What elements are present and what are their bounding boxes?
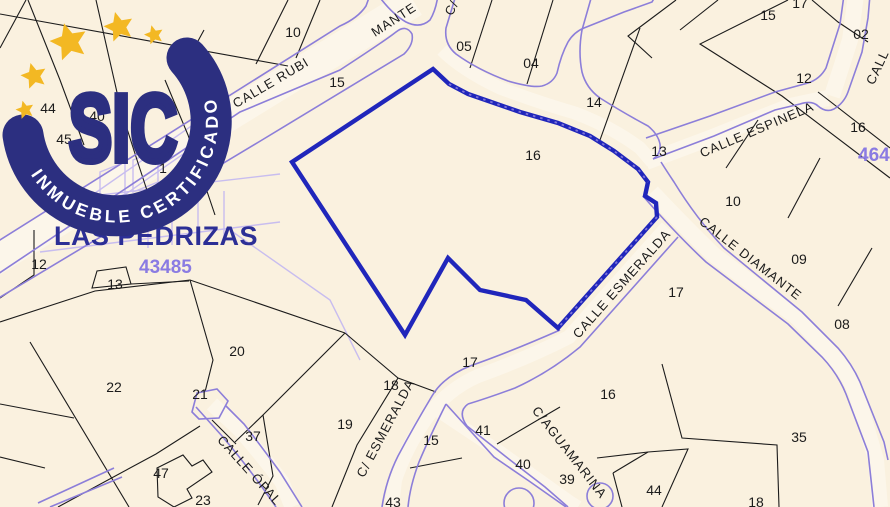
svg-text:17: 17 bbox=[792, 0, 808, 11]
svg-text:05: 05 bbox=[456, 38, 472, 54]
svg-text:16: 16 bbox=[850, 119, 866, 135]
svg-text:17: 17 bbox=[462, 354, 478, 370]
svg-text:19: 19 bbox=[337, 416, 353, 432]
svg-text:15: 15 bbox=[423, 432, 439, 448]
svg-text:43: 43 bbox=[385, 494, 401, 507]
svg-text:15: 15 bbox=[760, 7, 776, 23]
svg-text:16: 16 bbox=[600, 386, 616, 402]
svg-text:15: 15 bbox=[329, 74, 345, 90]
svg-text:08: 08 bbox=[834, 316, 850, 332]
svg-text:SIC: SIC bbox=[69, 76, 178, 182]
svg-text:02: 02 bbox=[853, 26, 869, 42]
svg-text:13: 13 bbox=[107, 276, 123, 292]
svg-text:09: 09 bbox=[791, 251, 807, 267]
svg-text:44: 44 bbox=[40, 100, 56, 116]
svg-text:10: 10 bbox=[285, 24, 301, 40]
svg-text:47: 47 bbox=[153, 465, 169, 481]
svg-text:04: 04 bbox=[523, 55, 539, 71]
svg-text:17: 17 bbox=[668, 284, 684, 300]
svg-text:10: 10 bbox=[725, 193, 741, 209]
svg-text:41: 41 bbox=[475, 422, 491, 438]
svg-text:23: 23 bbox=[195, 492, 211, 507]
svg-text:4646: 4646 bbox=[858, 145, 890, 166]
svg-text:16: 16 bbox=[525, 147, 541, 163]
svg-text:37: 37 bbox=[245, 428, 261, 444]
svg-text:39: 39 bbox=[559, 471, 575, 487]
svg-text:22: 22 bbox=[106, 379, 122, 395]
svg-text:43485: 43485 bbox=[139, 257, 192, 278]
svg-text:12: 12 bbox=[796, 70, 812, 86]
svg-text:40: 40 bbox=[515, 456, 531, 472]
svg-text:35: 35 bbox=[791, 429, 807, 445]
svg-text:21: 21 bbox=[192, 386, 208, 402]
svg-text:14: 14 bbox=[586, 94, 602, 110]
svg-text:20: 20 bbox=[229, 343, 245, 359]
svg-text:12: 12 bbox=[31, 256, 47, 272]
svg-text:44: 44 bbox=[646, 482, 662, 498]
svg-text:18: 18 bbox=[748, 494, 764, 507]
svg-text:13: 13 bbox=[651, 143, 667, 159]
